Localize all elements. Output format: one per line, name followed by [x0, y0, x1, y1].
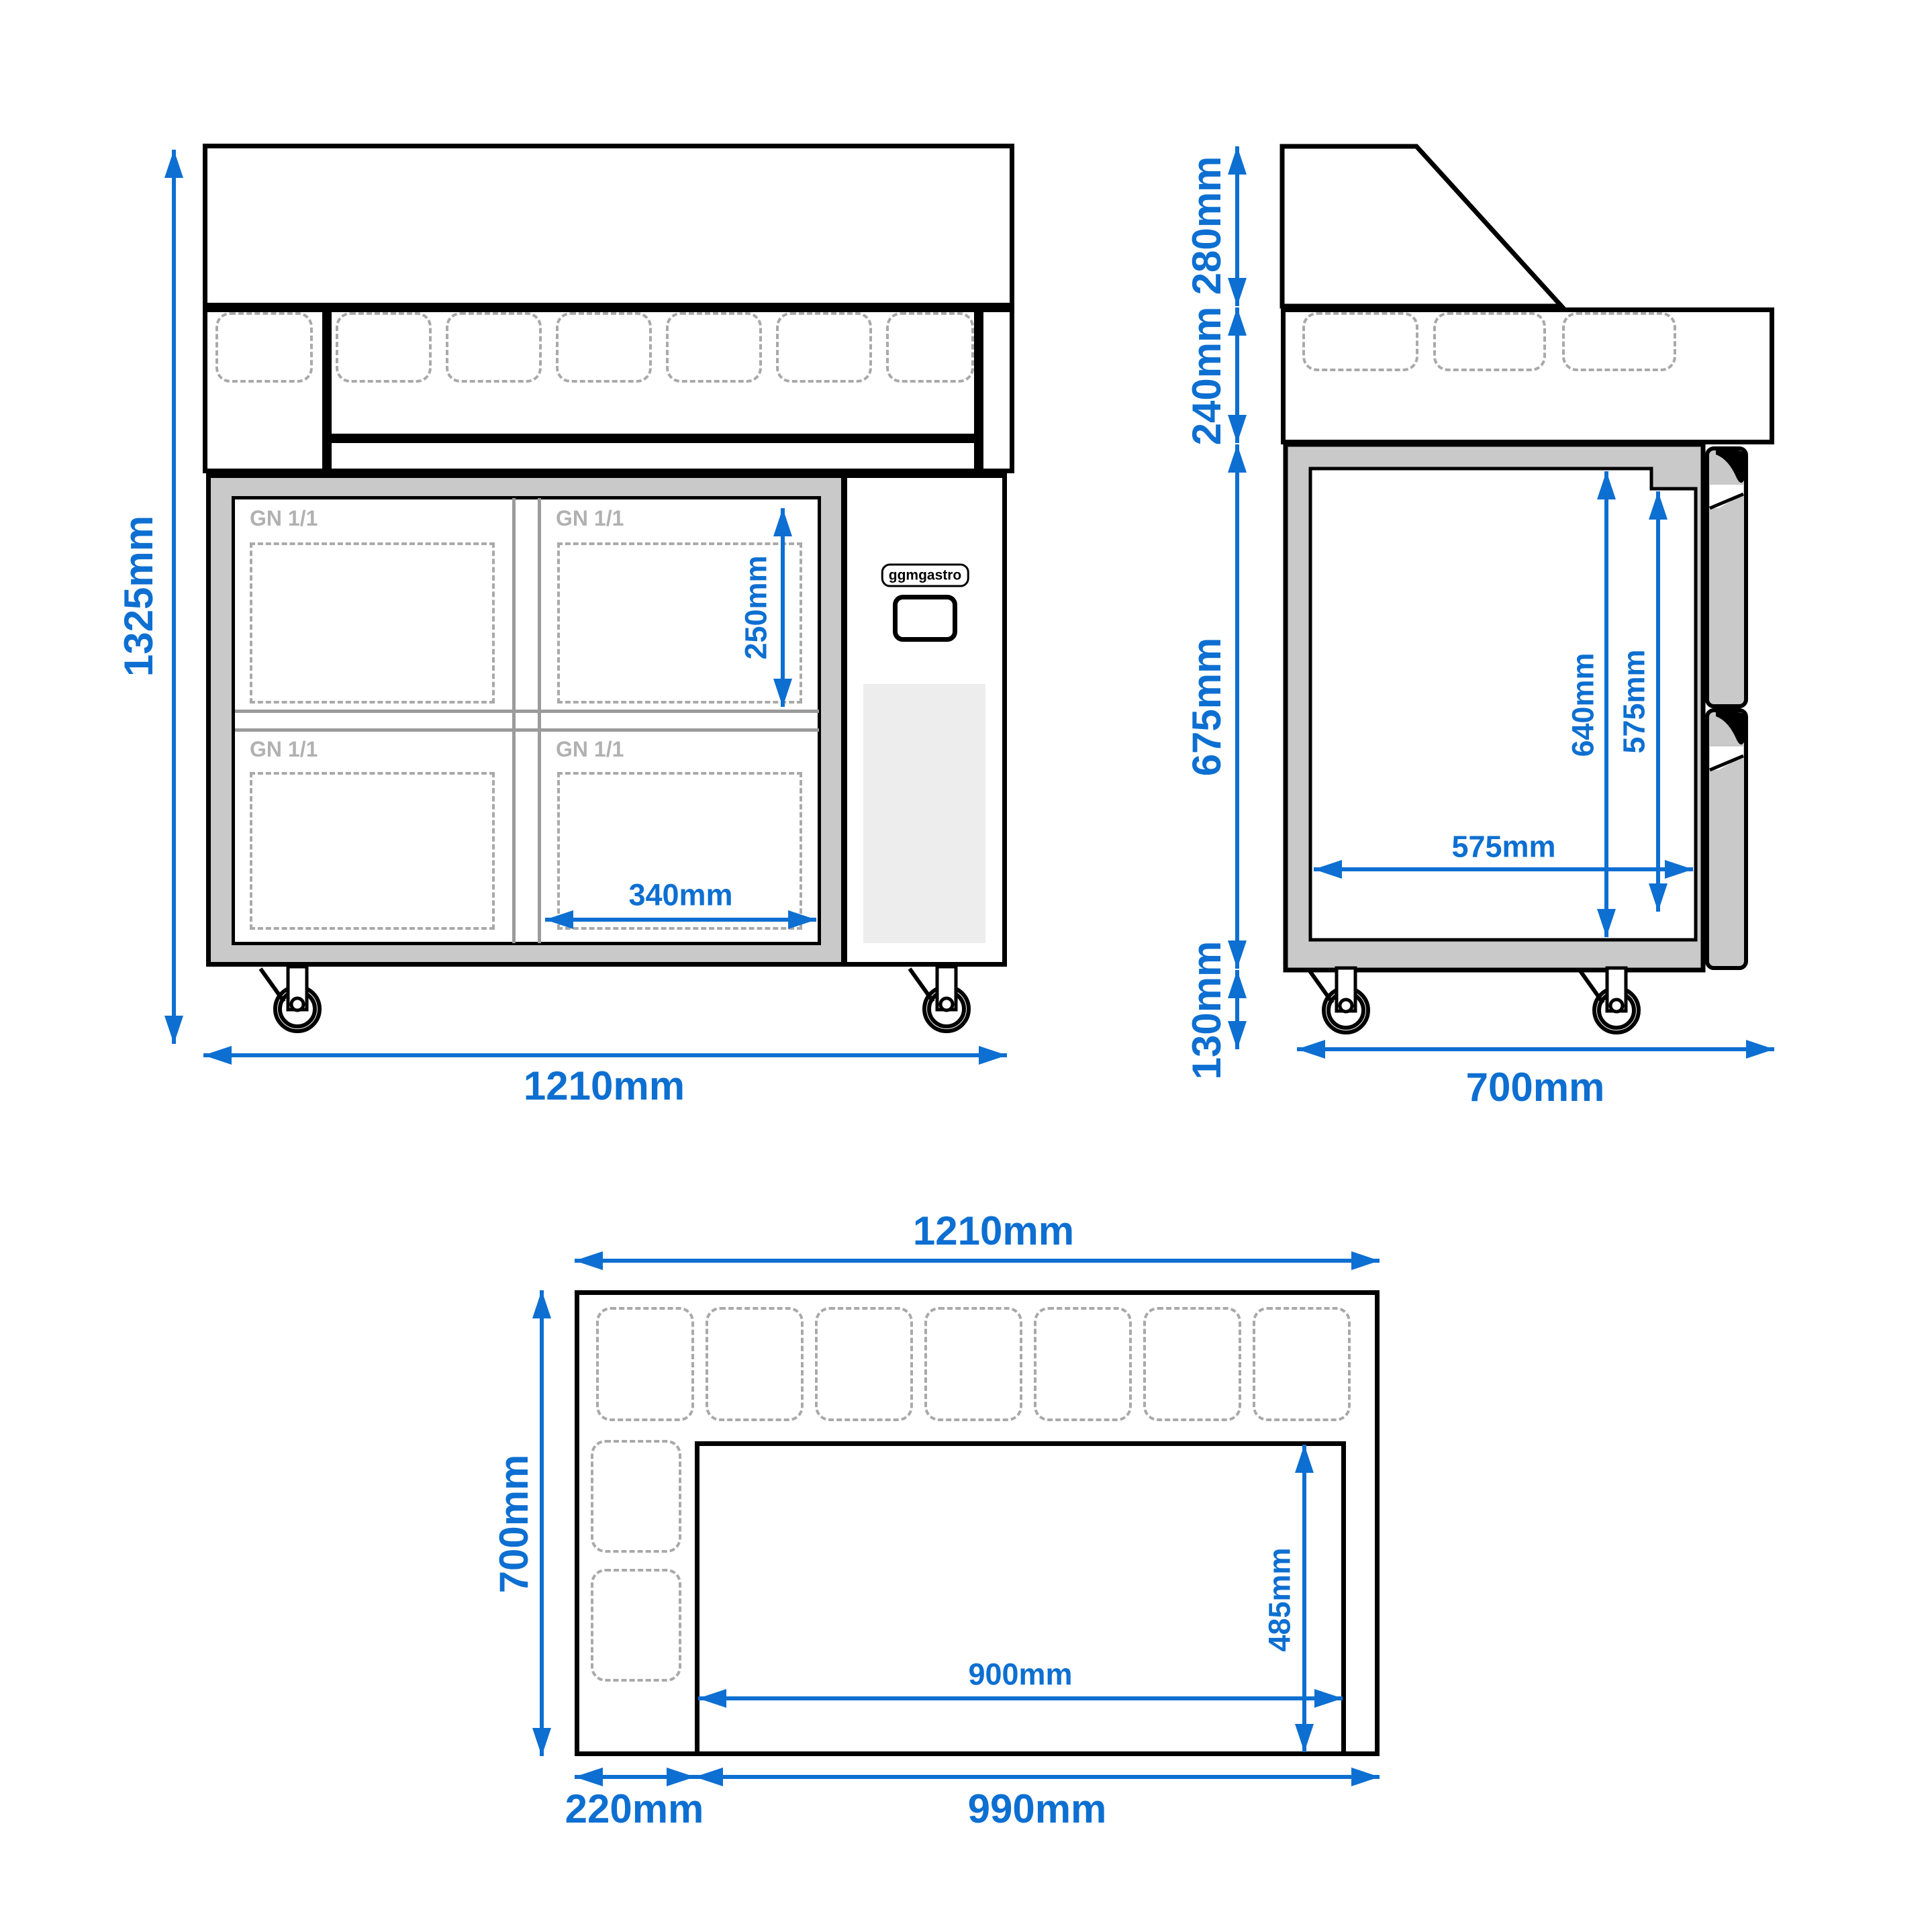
dim-label-overall-width: 1210mm — [524, 1066, 685, 1106]
caster-wheel — [1580, 968, 1639, 1032]
dim-label-body-height: 675mm — [1187, 638, 1227, 777]
side-glass-profile — [1282, 146, 1561, 306]
dim-label-pan-depth: 250mm — [741, 555, 771, 659]
dim-label-inner-depth: 575mm — [1451, 832, 1555, 862]
dim-label-cutout-depth: 485mm — [1265, 1547, 1295, 1651]
dim-label-top-width: 1210mm — [913, 1211, 1074, 1251]
technical-drawing-canvas: GN 1/1 GN 1/1 GN 1/1 GN 1/1 ggmgastro — [0, 0, 1932, 1932]
dim-label-drawer-height: 575mm — [1619, 649, 1649, 753]
dim-label-inner-height: 640mm — [1568, 653, 1598, 757]
drawer-front — [1707, 710, 1746, 968]
dim-label-caster-height: 130mm — [1187, 941, 1227, 1080]
drawer-front — [1707, 448, 1746, 706]
dim-label-glass-height: 280mm — [1187, 156, 1227, 295]
dim-label-rail-height: 240mm — [1187, 307, 1227, 446]
caster-wheel — [1309, 968, 1368, 1032]
drawing-linework — [0, 0, 1932, 1932]
dim-label-overall-height: 1325mm — [119, 516, 159, 677]
dim-label-top-depth: 700mm — [494, 1455, 534, 1594]
caster-wheel — [260, 967, 320, 1031]
dim-label-left-section: 220mm — [565, 1789, 704, 1829]
dim-label-right-section: 990mm — [968, 1789, 1107, 1829]
dim-label-overall-depth: 700mm — [1466, 1067, 1605, 1108]
caster-wheel — [910, 967, 969, 1031]
dim-label-pan-width: 340mm — [628, 880, 732, 910]
dim-label-cutout-width: 900mm — [968, 1659, 1072, 1690]
